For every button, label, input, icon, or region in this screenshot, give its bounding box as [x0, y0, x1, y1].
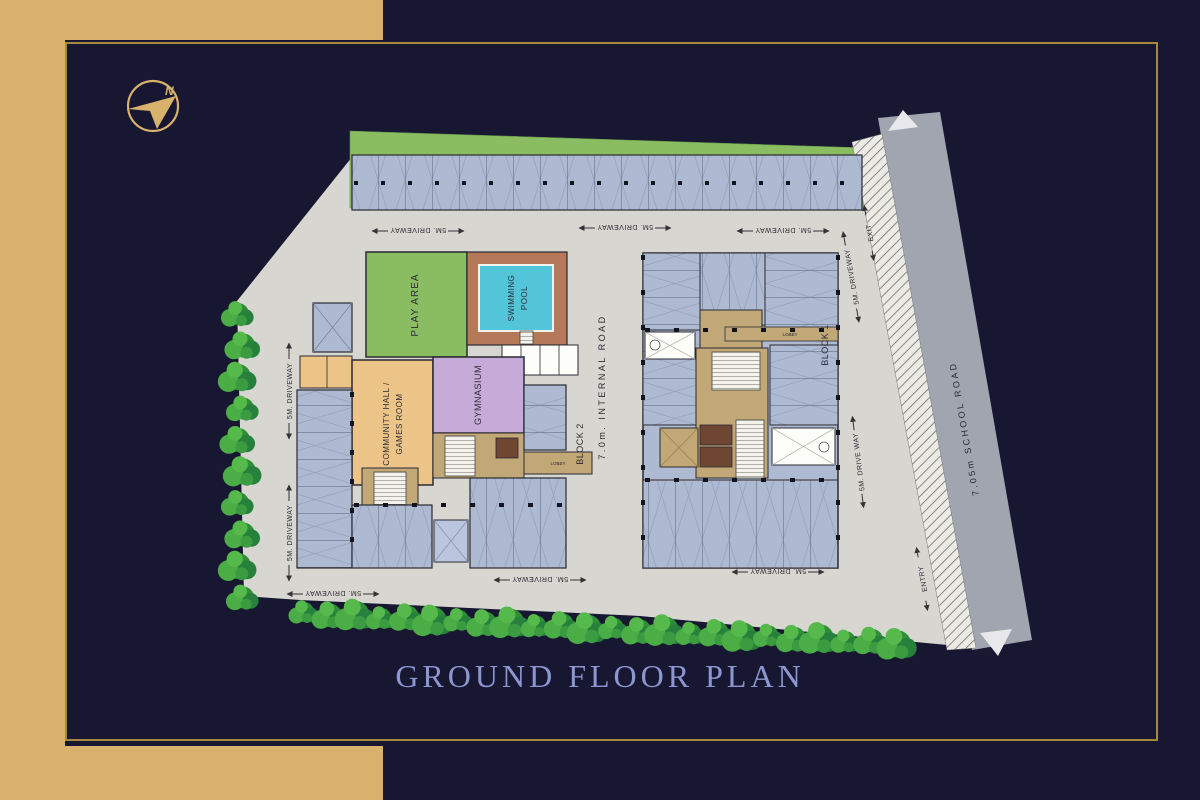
block2-stalls-right	[524, 385, 566, 450]
lift-icon	[700, 447, 732, 467]
community-hall-label-1: COMMUNITY HALL /	[382, 382, 391, 466]
compass-icon: N	[128, 81, 178, 131]
lift-icon	[496, 438, 518, 458]
driveway-label: 5M. DRIVEWAY	[390, 226, 446, 233]
driveway-label: 5M. DRIVEWAY	[755, 226, 811, 233]
play-area-label: PLAY AREA	[410, 273, 421, 336]
parking-row-top	[352, 155, 862, 210]
block1-stalls-top-left	[643, 253, 700, 330]
driveway-label: 5M. DRIVEWAY	[287, 363, 294, 419]
block2-label: BLOCK 2	[575, 423, 585, 465]
swimming-pool-label-2: POOL	[520, 286, 529, 310]
driveway-label: 5M. DRIVEWAY	[597, 223, 653, 230]
block1-label: BLOCK 1	[820, 324, 830, 366]
block1-stalls-top-right	[765, 253, 838, 330]
community-hall-label-2: GAMES ROOM	[395, 393, 404, 454]
pool-ladder-icon	[520, 331, 533, 344]
page-title: GROUND FLOOR PLAN	[0, 658, 1200, 695]
swimming-pool-deck: SWIMMING POOL	[467, 252, 567, 345]
block2-stalls-bottom-a	[352, 505, 432, 568]
lobby-label: LOBBY	[550, 461, 565, 466]
compass-north-label: N	[165, 84, 174, 98]
block1-stalls-bottom	[643, 480, 838, 568]
lobby-label-2: LOBBY	[782, 332, 797, 337]
community-hall	[352, 360, 433, 485]
lift-icon	[700, 425, 732, 445]
internal-road-label: 7.0m. INTERNAL ROAD	[597, 314, 607, 459]
swimming-pool	[479, 265, 553, 331]
block-1: LOBBY BLOCK 1	[643, 253, 838, 568]
driveway-label: 5M. DRIVEWAY	[287, 505, 294, 561]
driveway-label: 5M. DRIVEWAY	[305, 589, 361, 596]
block2-stalls-left	[297, 390, 352, 568]
driveway-label: 5M. DRIVEWAY	[512, 575, 568, 582]
driveway-label: 5M. DRIVEWAY	[750, 567, 806, 574]
swimming-pool-label-1: SWIMMING	[507, 275, 516, 322]
utility-rooms	[300, 356, 352, 388]
gymnasium-label: GYMNASIUM	[473, 365, 483, 425]
brochure-page: 7.05m SCHOOL ROAD PLAY AREA SWIMMING POO…	[0, 0, 1200, 800]
block2-stalls-bottom-b	[470, 478, 566, 568]
